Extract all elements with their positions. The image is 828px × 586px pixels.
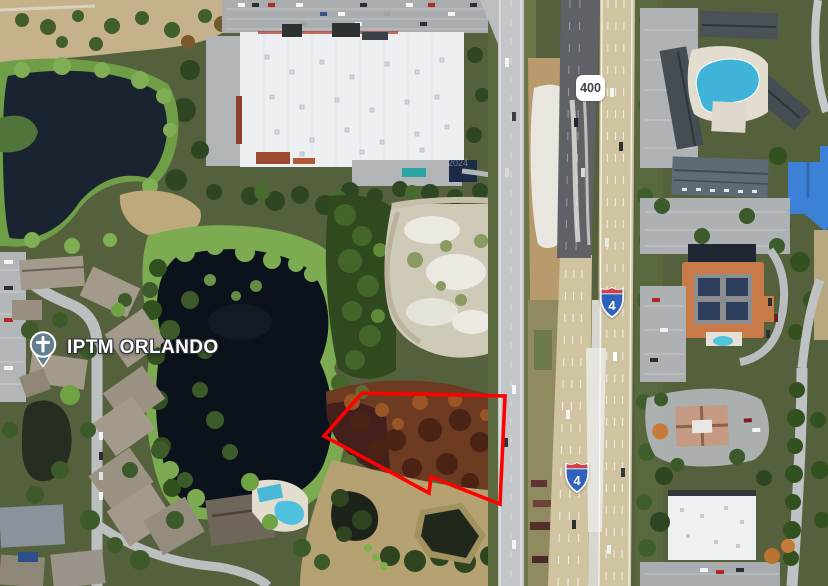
interstate-4-shield-south: 4	[564, 461, 590, 493]
place-label[interactable]: IPTM ORLANDO	[67, 337, 219, 359]
svg-text:4: 4	[573, 473, 581, 488]
property-boundary-layer	[0, 0, 828, 586]
property-boundary	[324, 393, 505, 504]
svg-text:4: 4	[608, 298, 616, 313]
imagery-watermark: 2024	[448, 158, 468, 168]
route-400-shield: 400	[576, 75, 605, 101]
church-pin-icon[interactable]	[28, 330, 58, 368]
interstate-4-shield-north: 4	[599, 286, 625, 318]
satellite-map-canvas[interactable]: IPTM ORLANDO 400 4 4 2024	[0, 0, 828, 586]
route-400-text: 400	[580, 81, 601, 95]
